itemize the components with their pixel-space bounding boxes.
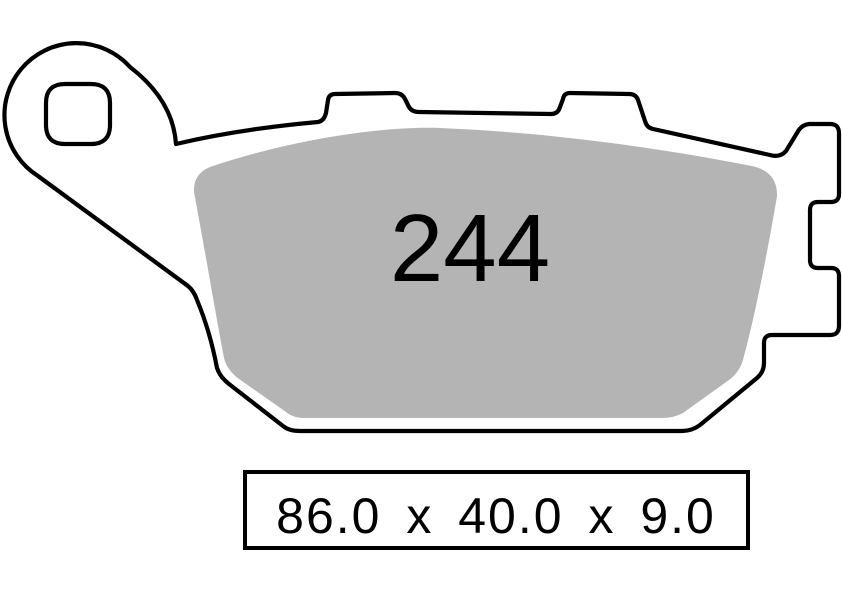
brake-pad-diagram: 244 86.0 x 40.0 x 9.0 — [0, 0, 842, 595]
dimensions-label: 86.0 x 40.0 x 9.0 — [276, 488, 716, 544]
mounting-hole — [46, 84, 110, 144]
brake-pad-drawing-canvas: 244 86.0 x 40.0 x 9.0 — [0, 0, 842, 595]
part-number-label: 244 — [390, 195, 550, 302]
